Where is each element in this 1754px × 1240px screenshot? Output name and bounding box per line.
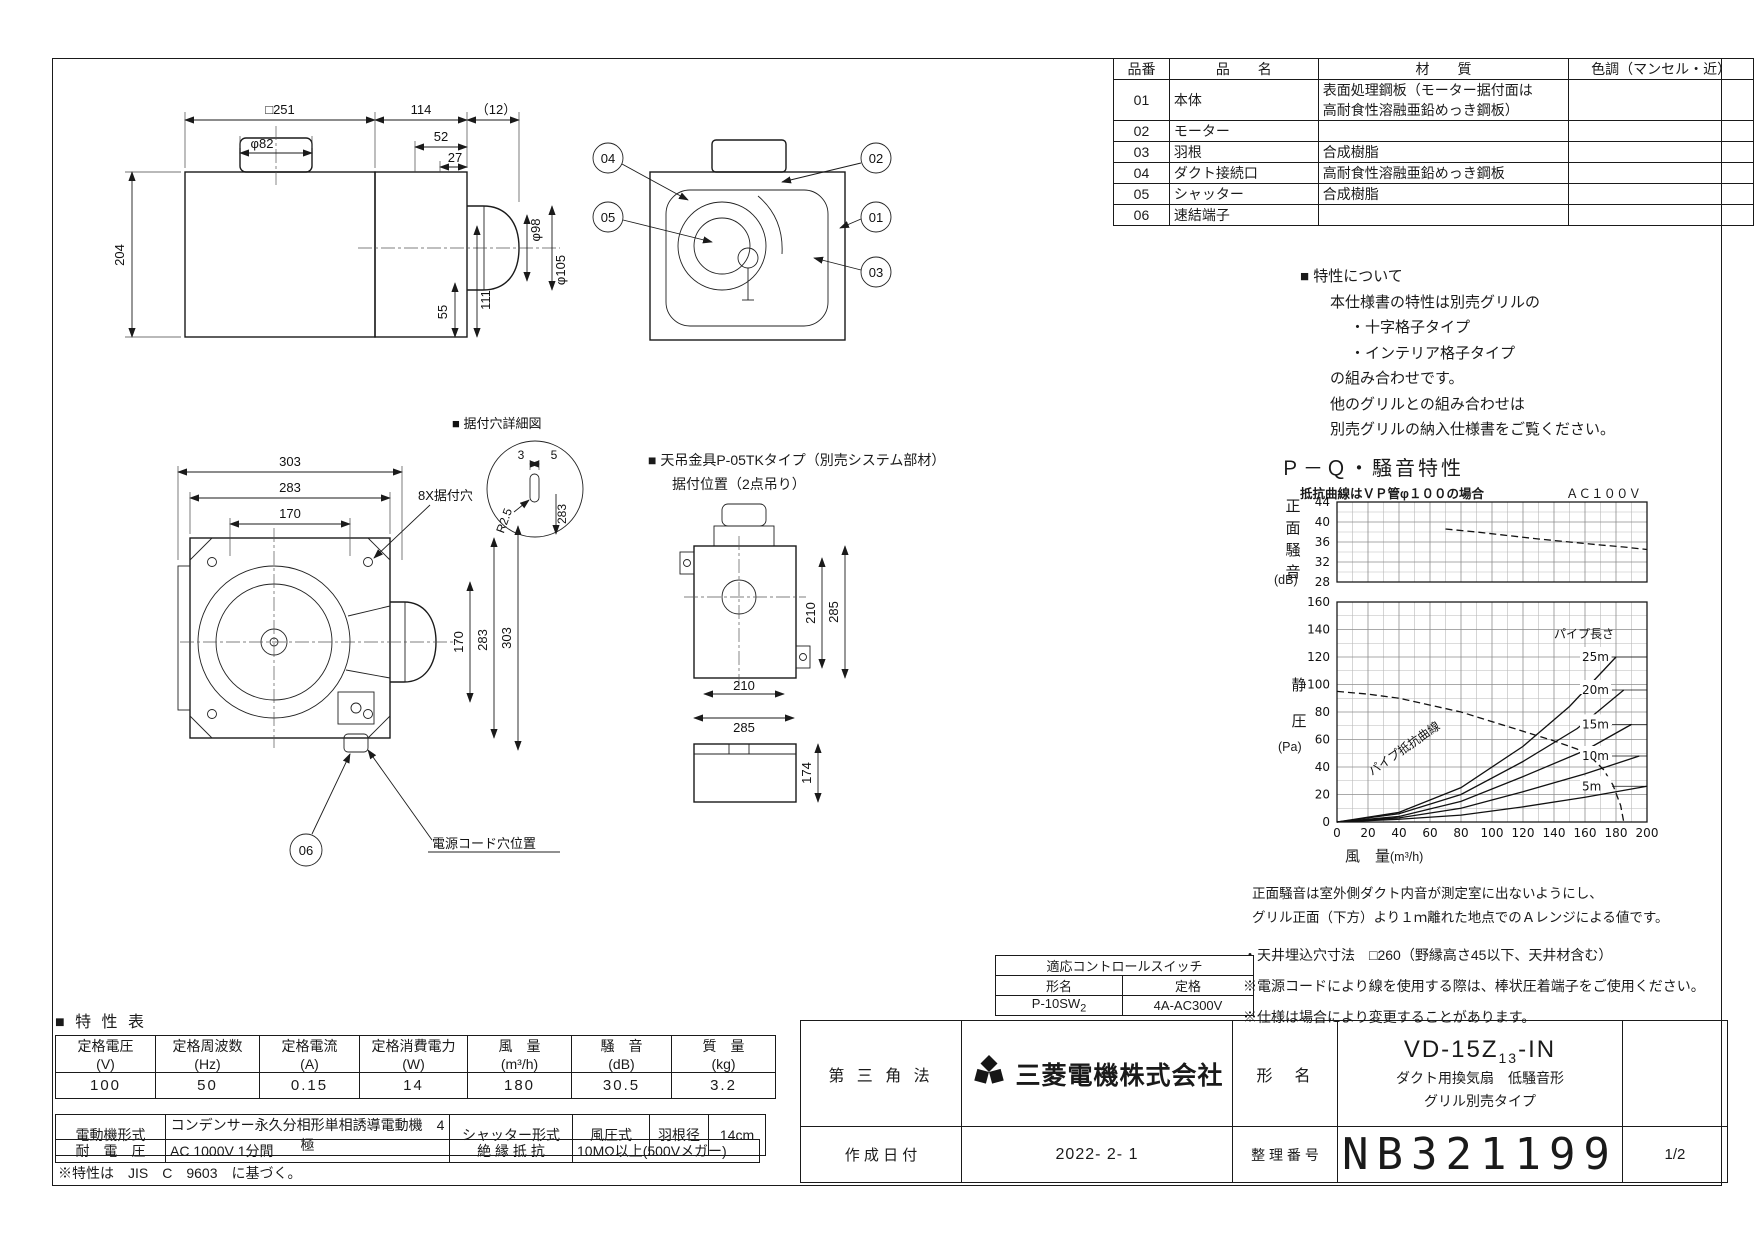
dim-111: 111	[478, 290, 493, 310]
part-no: 03	[1114, 142, 1170, 163]
part-no: 06	[1114, 205, 1170, 226]
part-no: 01	[1114, 80, 1170, 121]
bracket-dim-v210: 210	[803, 602, 818, 624]
svg-text:80: 80	[1315, 705, 1330, 719]
spec-value: 3.2	[672, 1073, 776, 1099]
install-note-line: ・天井埋込穴寸法 □260（野縁高さ45以下、天井材含む）	[1243, 940, 1705, 971]
part-no: 05	[1114, 184, 1170, 205]
bracket-dim-h285: 285	[733, 720, 755, 735]
switch-model-value: P-10SW2	[996, 996, 1123, 1016]
svg-text:160: 160	[1307, 595, 1330, 609]
balloon-01: 01	[869, 210, 883, 225]
part-color	[1569, 205, 1754, 226]
spec-footnote: ※特性は JIS C 9603 に基づく。	[58, 1163, 301, 1183]
part-material	[1318, 205, 1569, 226]
dim-duct-105: φ105	[553, 255, 568, 285]
svg-text:10m: 10m	[1582, 749, 1609, 763]
table-row: 05 シャッター 合成樹脂	[1114, 184, 1754, 205]
parts-header-row: 品番 品 名 材 質 色調（マンセル・近）	[1114, 59, 1754, 80]
dim-283-w: 283	[279, 480, 301, 495]
part-no: 04	[1114, 163, 1170, 184]
model-description-2: グリル別売タイプ	[1342, 1091, 1618, 1111]
spec-value: 100	[56, 1073, 156, 1099]
svg-text:60: 60	[1315, 733, 1330, 747]
parts-table: 品番 品 名 材 質 色調（マンセル・近） 01 本体 表面処理鋼板（モーター据…	[1113, 58, 1754, 226]
part-name: 羽根	[1169, 142, 1318, 163]
part-color	[1569, 80, 1754, 121]
spec-header: 騒 音 (dB)	[572, 1036, 672, 1073]
part-no: 02	[1114, 121, 1170, 142]
table-row: 02 モーター	[1114, 121, 1754, 142]
company-cell: 三菱電機株式会社	[962, 1021, 1233, 1127]
page-number: 1/2	[1622, 1127, 1727, 1183]
withstand-value: AC 1000V 1分間	[166, 1140, 450, 1163]
company-name: 三菱電機株式会社	[1015, 1056, 1223, 1092]
part-material: 高耐食性溶融亜鉛めっき鋼板	[1318, 163, 1569, 184]
switch-model-text: P-10SW	[1032, 996, 1080, 1011]
detail-dim-5: 5	[551, 448, 558, 462]
part-material	[1318, 121, 1569, 142]
table-row: 06 速結端子	[1114, 205, 1754, 226]
dim-27: 27	[448, 150, 462, 165]
bracket-subtitle: 据付位置（2点吊り）	[672, 474, 806, 494]
model-label: 形 名	[1233, 1021, 1338, 1127]
spec-header: 風 量 (m³/h)	[468, 1036, 572, 1073]
svg-text:32: 32	[1315, 555, 1330, 569]
part-color	[1569, 184, 1754, 205]
pq-note-line: 正面騒音は室外側ダクト内音が測定室に出ないようにし、	[1252, 882, 1668, 906]
svg-text:80: 80	[1453, 826, 1468, 840]
dim-body-width: □251	[265, 102, 295, 117]
detail-dim-3: 3	[518, 448, 525, 462]
dim-170-h: 170	[451, 631, 466, 653]
model-description-1: ダクト用換気扇 低騒音形	[1342, 1068, 1618, 1088]
pq-note-line: グリル正面（下方）より１ｍ離れた地点でのＡレンジによる値です。	[1252, 906, 1668, 930]
switch-rating-value: 4A-AC300V	[1123, 996, 1254, 1016]
svg-text:20: 20	[1315, 788, 1330, 802]
spec-table-withstand-row: 耐 電 圧 AC 1000V 1分間 絶 縁 抵 抗 10MΩ以上(500Vメガ…	[55, 1139, 760, 1163]
empty-cell	[1622, 1021, 1727, 1127]
bracket-dim-h210: 210	[733, 678, 755, 693]
svg-text:20m: 20m	[1582, 683, 1609, 697]
svg-text:36: 36	[1315, 535, 1330, 549]
parts-col-color: 色調（マンセル・近）	[1569, 59, 1754, 80]
balloon-02: 02	[869, 151, 883, 166]
svg-text:100: 100	[1307, 678, 1330, 692]
feature-note-line: 別売グリルの納入仕様書をご覧ください。	[1330, 417, 1615, 443]
bracket-dim-174: 174	[799, 762, 814, 784]
part-name: ダクト接続口	[1169, 163, 1318, 184]
svg-text:20: 20	[1360, 826, 1375, 840]
part-color	[1569, 142, 1754, 163]
spec-header: 質 量 (kg)	[672, 1036, 776, 1073]
dim-height-204: 204	[112, 244, 127, 266]
flow-axis-label: 風 量(m³/h)	[1345, 845, 1423, 866]
svg-text:60: 60	[1422, 826, 1437, 840]
table-row: 04 ダクト接続口 高耐食性溶融亜鉛めっき鋼板	[1114, 163, 1754, 184]
dim-cap-dia: φ82	[251, 136, 274, 151]
spec-value: 50	[156, 1073, 260, 1099]
insulation-label: 絶 縁 抵 抗	[450, 1140, 573, 1163]
bracket-title: ■ 天吊金具P-05TKタイプ（別売システム部材）	[648, 450, 945, 470]
parts-col-material: 材 質	[1318, 59, 1569, 80]
svg-text:40: 40	[1315, 515, 1330, 529]
svg-text:40: 40	[1391, 826, 1406, 840]
part-color	[1569, 163, 1754, 184]
dim-duct-ext: （12）	[476, 102, 516, 117]
pipe-resistance-label: パイプ抵抗曲線	[1365, 718, 1442, 778]
flow-axis-unit: (m³/h)	[1390, 850, 1423, 864]
balloon-03: 03	[869, 265, 883, 280]
parts-col-name: 品 名	[1169, 59, 1318, 80]
spec-header: 定格周波数 (Hz)	[156, 1036, 260, 1073]
feature-note-title: ■ 特性について	[1300, 264, 1615, 290]
spec-section-title: ■ 特 性 表	[55, 1008, 147, 1032]
svg-text:120: 120	[1512, 826, 1535, 840]
flow-axis-text: 風 量	[1345, 848, 1390, 865]
table-row: 01 本体 表面処理鋼板（モーター据付面は 高耐食性溶融亜鉛めっき鋼板）	[1114, 80, 1754, 121]
pq-notes: 正面騒音は室外側ダクト内音が測定室に出ないようにし、 グリル正面（下方）より１ｍ…	[1252, 882, 1668, 930]
number-label: 整 理 番 号	[1233, 1127, 1338, 1183]
feature-note-line: の組み合わせです。	[1330, 366, 1615, 392]
dim-55: 55	[435, 305, 450, 319]
date-label: 作 成 日 付	[801, 1127, 962, 1183]
feature-note-line: 他のグリルとの組み合わせは	[1330, 392, 1615, 418]
dim-303-h: 303	[499, 627, 514, 649]
bottom-view: 06 電源コード穴位置 303 283 170 170 283 303	[178, 416, 583, 866]
control-switch-title: 適応コントロールスイッチ	[996, 956, 1254, 976]
svg-text:180: 180	[1605, 826, 1628, 840]
balloon-06: 06	[299, 843, 313, 858]
spec-value: 0.15	[260, 1073, 360, 1099]
spec-value: 180	[468, 1073, 572, 1099]
parts-col-no: 品番	[1114, 59, 1170, 80]
cutaway-view: 04 05 02 01 03	[593, 140, 891, 340]
spec-value-row: 100 50 0.15 14 180 30.5 3.2	[56, 1073, 776, 1099]
spec-value: 14	[360, 1073, 468, 1099]
svg-text:160: 160	[1574, 826, 1597, 840]
part-name: モーター	[1169, 121, 1318, 142]
svg-text:25m: 25m	[1582, 650, 1609, 664]
spec-header: 定格電圧 (V)	[56, 1036, 156, 1073]
svg-text:100: 100	[1481, 826, 1504, 840]
detail-dim-283: 283	[555, 504, 569, 524]
svg-text:200: 200	[1636, 826, 1659, 840]
insulation-value: 10MΩ以上(500Vメガー)	[573, 1140, 760, 1163]
svg-text:15m: 15m	[1582, 717, 1609, 731]
dim-283-h: 283	[475, 629, 490, 651]
dim-duct-98: φ98	[528, 219, 543, 242]
switch-rating-header: 定格	[1123, 976, 1254, 996]
drawing-number: NB321199	[1338, 1127, 1623, 1183]
mount-detail-title: ■ 据付穴詳細図	[452, 416, 541, 431]
svg-text:0: 0	[1322, 815, 1330, 829]
balloon-05: 05	[601, 210, 615, 225]
pipe-length-label: パイプ長さ	[1554, 627, 1614, 641]
title-block: 第 三 角 法 三菱電機株式会社 形 名 VD-15Z13-IN ダクト	[800, 1020, 1728, 1183]
part-name: 本体	[1169, 80, 1318, 121]
dim-52: 52	[434, 129, 448, 144]
feature-note-line: ・インテリア格子タイプ	[1350, 341, 1615, 367]
spec-sheet: □251 114 （12） φ82 52 27 204 φ98 φ105 55 …	[0, 0, 1754, 1240]
mitsubishi-logo-icon	[970, 1053, 1008, 1094]
cord-hole-label: 電源コード穴位置	[432, 836, 536, 851]
dim-170-w: 170	[279, 506, 301, 521]
feature-note: ■ 特性について 本仕様書の特性は別売グリルの ・十字格子タイプ ・インテリア格…	[1300, 264, 1615, 443]
date-value: 2022- 2- 1	[962, 1127, 1233, 1183]
part-name: シャッター	[1169, 184, 1318, 205]
spec-header-row: 定格電圧 (V) 定格周波数 (Hz) 定格電流 (A) 定格消費電力 (W) …	[56, 1036, 776, 1073]
svg-text:0: 0	[1333, 826, 1341, 840]
bracket-dim-v285: 285	[826, 601, 841, 623]
part-material: 表面処理鋼板（モーター据付面は 高耐食性溶融亜鉛めっき鋼板）	[1318, 80, 1569, 121]
spec-header: 定格電流 (A)	[260, 1036, 360, 1073]
feature-note-line: ・十字格子タイプ	[1350, 315, 1615, 341]
switch-model-header: 形名	[996, 976, 1123, 996]
part-name: 速結端子	[1169, 205, 1318, 226]
pq-noise-plot: 283236404402040608010012014016025m20m15m…	[1130, 440, 1730, 890]
front-view: □251 114 （12） φ82 52 27 204 φ98 φ105 55 …	[112, 102, 568, 337]
spec-table-main: 定格電圧 (V) 定格周波数 (Hz) 定格電流 (A) 定格消費電力 (W) …	[55, 1035, 776, 1099]
bracket-view: 210 285 210 285 174	[680, 504, 845, 802]
mount-hole-label: 8X据付穴	[418, 488, 473, 503]
svg-text:44: 44	[1315, 495, 1330, 509]
svg-text:140: 140	[1307, 623, 1330, 637]
install-note-line: ※電源コードにより線を使用する際は、棒状圧着端子をご使用ください。	[1243, 971, 1705, 1002]
projection-method: 第 三 角 法	[801, 1021, 962, 1127]
svg-text:28: 28	[1315, 575, 1330, 589]
balloon-04: 04	[601, 151, 615, 166]
feature-note-line: 本仕様書の特性は別売グリルの	[1330, 290, 1615, 316]
model-number: VD-15Z13-IN	[1342, 1036, 1618, 1066]
spec-value: 30.5	[572, 1073, 672, 1099]
switch-model-sub: 2	[1080, 1003, 1086, 1015]
part-color	[1569, 121, 1754, 142]
part-material: 合成樹脂	[1318, 184, 1569, 205]
spec-header: 定格消費電力 (W)	[360, 1036, 468, 1073]
dim-303-w: 303	[279, 454, 301, 469]
svg-text:40: 40	[1315, 760, 1330, 774]
svg-text:5m: 5m	[1582, 779, 1601, 793]
control-switch-table: 適応コントロールスイッチ 形名 定格 P-10SW2 4A-AC300V	[995, 955, 1254, 1016]
table-row: 03 羽根 合成樹脂	[1114, 142, 1754, 163]
model-cell: VD-15Z13-IN ダクト用換気扇 低騒音形 グリル別売タイプ	[1338, 1021, 1623, 1127]
svg-text:140: 140	[1543, 826, 1566, 840]
svg-text:120: 120	[1307, 650, 1330, 664]
withstand-label: 耐 電 圧	[56, 1140, 166, 1163]
part-material: 合成樹脂	[1318, 142, 1569, 163]
dim-depth: 114	[411, 102, 432, 117]
